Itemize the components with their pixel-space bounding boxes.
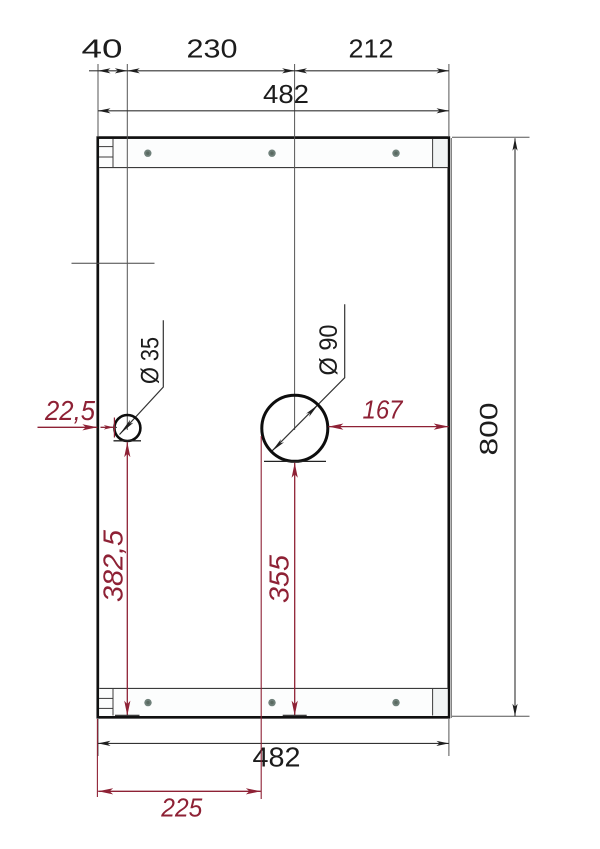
svg-text:382,5: 382,5 — [97, 530, 128, 602]
svg-text:800: 800 — [476, 403, 504, 456]
svg-text:230: 230 — [187, 34, 238, 64]
svg-text:Ø 90: Ø 90 — [315, 325, 343, 376]
svg-text:225: 225 — [160, 793, 202, 823]
svg-text:355: 355 — [264, 555, 295, 603]
svg-text:482: 482 — [263, 79, 309, 109]
svg-text:482: 482 — [253, 742, 301, 773]
svg-text:22,5: 22,5 — [44, 395, 95, 426]
svg-text:Ø 35: Ø 35 — [137, 337, 165, 384]
svg-text:167: 167 — [363, 395, 404, 425]
svg-text:212: 212 — [349, 34, 394, 64]
svg-text:40: 40 — [82, 34, 123, 64]
